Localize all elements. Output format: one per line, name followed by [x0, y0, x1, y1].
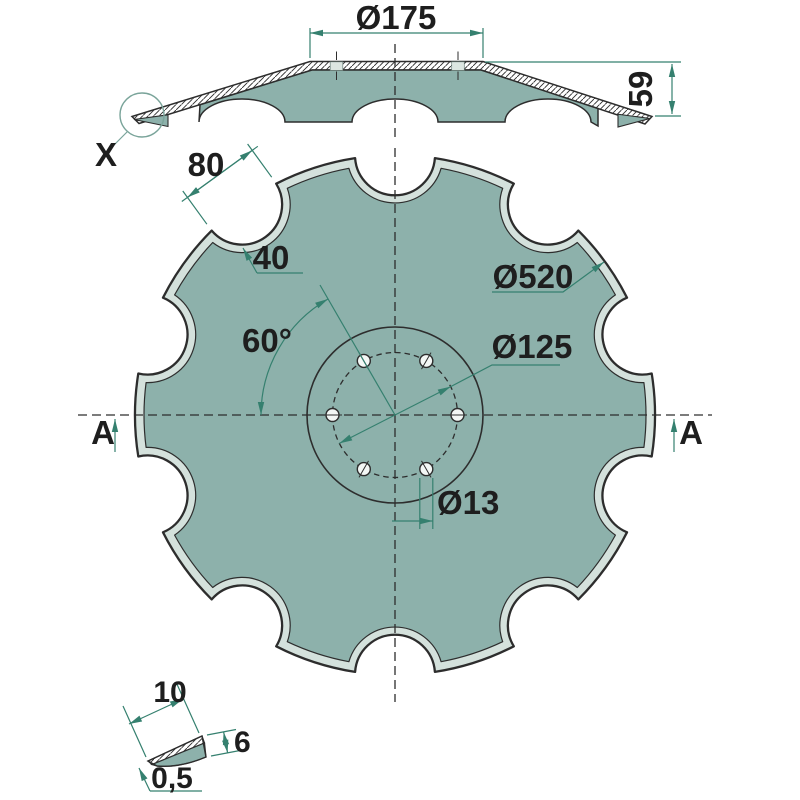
section-bolt-hole-right — [452, 62, 465, 71]
dim-hole-angle: 60° — [242, 322, 292, 359]
section-marker-left: A — [91, 414, 115, 451]
detail-view: 10 6 0,5 — [123, 676, 251, 795]
detail-dim-edge-leader — [139, 768, 150, 791]
dim-cone-height: 59 — [622, 71, 659, 108]
detail-dim-thickness: 6 — [234, 726, 251, 759]
detail-dim-bevel-length: 10 — [153, 676, 186, 709]
technical-drawing: X Ø175 59 80 40 60° Ø520 — [0, 0, 800, 800]
section-bolt-hole-left — [330, 62, 343, 71]
dim-hole-diameter: Ø13 — [437, 484, 499, 521]
dim-outer-diameter: Ø520 — [493, 258, 574, 295]
section-view: X Ø175 59 — [95, 0, 681, 173]
section-marker-right: A — [679, 414, 703, 451]
detail-dim-edge-thickness: 0,5 — [151, 762, 193, 795]
front-view: 80 40 60° Ø520 Ø125 Ø13 A A — [78, 144, 712, 702]
dim-flat-diameter: Ø175 — [356, 0, 437, 36]
dim-notch-depth: 40 — [253, 239, 290, 276]
detail-dim-thickness-line — [224, 732, 228, 753]
dim-bolt-circle-diameter: Ø125 — [492, 328, 573, 365]
detail-marker-label: X — [95, 136, 117, 173]
dim-notch-width: 80 — [188, 146, 225, 183]
